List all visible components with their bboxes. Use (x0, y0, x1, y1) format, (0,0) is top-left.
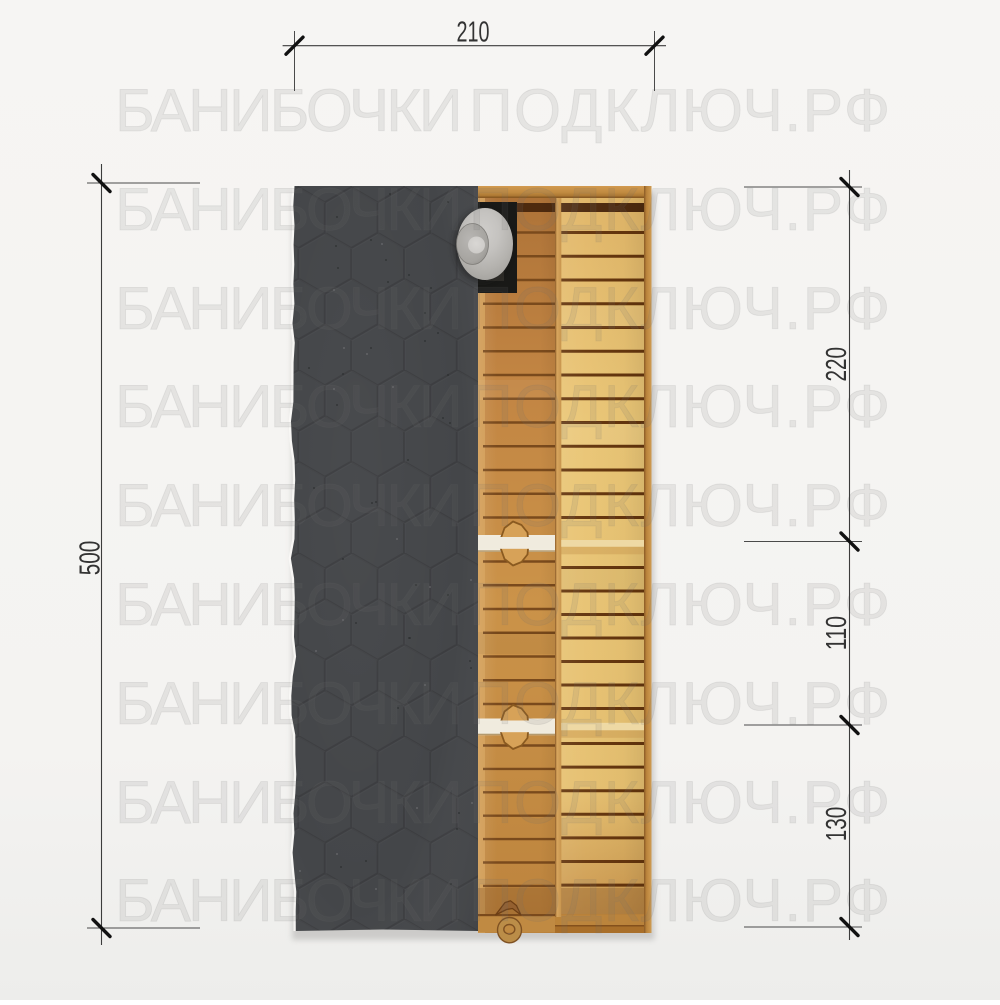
svg-text:130: 130 (821, 807, 853, 842)
svg-text:БАНИБОЧКИПОДКЛЮЧ.РФ: БАНИБОЧКИПОДКЛЮЧ.РФ (115, 372, 892, 440)
svg-text:110: 110 (821, 616, 853, 651)
svg-text:БАНИБОЧКИПОДКЛЮЧ.РФ: БАНИБОЧКИПОДКЛЮЧ.РФ (115, 274, 892, 342)
svg-text:БАНИБОЧКИПОДКЛЮЧ.РФ: БАНИБОЧКИПОДКЛЮЧ.РФ (115, 175, 892, 243)
svg-text:500: 500 (75, 541, 107, 576)
svg-text:210: 210 (457, 17, 490, 49)
svg-text:БАНИБОЧКИПОДКЛЮЧ.РФ: БАНИБОЧКИПОДКЛЮЧ.РФ (115, 471, 892, 539)
svg-text:БАНИБОЧКИПОДКЛЮЧ.РФ: БАНИБОЧКИПОДКЛЮЧ.РФ (115, 76, 892, 144)
svg-text:БАНИБОЧКИПОДКЛЮЧ.РФ: БАНИБОЧКИПОДКЛЮЧ.РФ (115, 669, 892, 737)
svg-text:БАНИБОЧКИПОДКЛЮЧ.РФ: БАНИБОЧКИПОДКЛЮЧ.РФ (115, 570, 892, 638)
svg-text:БАНИБОЧКИПОДКЛЮЧ.РФ: БАНИБОЧКИПОДКЛЮЧ.РФ (115, 768, 892, 836)
svg-text:БАНИБОЧКИПОДКЛЮЧ.РФ: БАНИБОЧКИПОДКЛЮЧ.РФ (115, 866, 892, 934)
svg-text:220: 220 (821, 347, 853, 382)
